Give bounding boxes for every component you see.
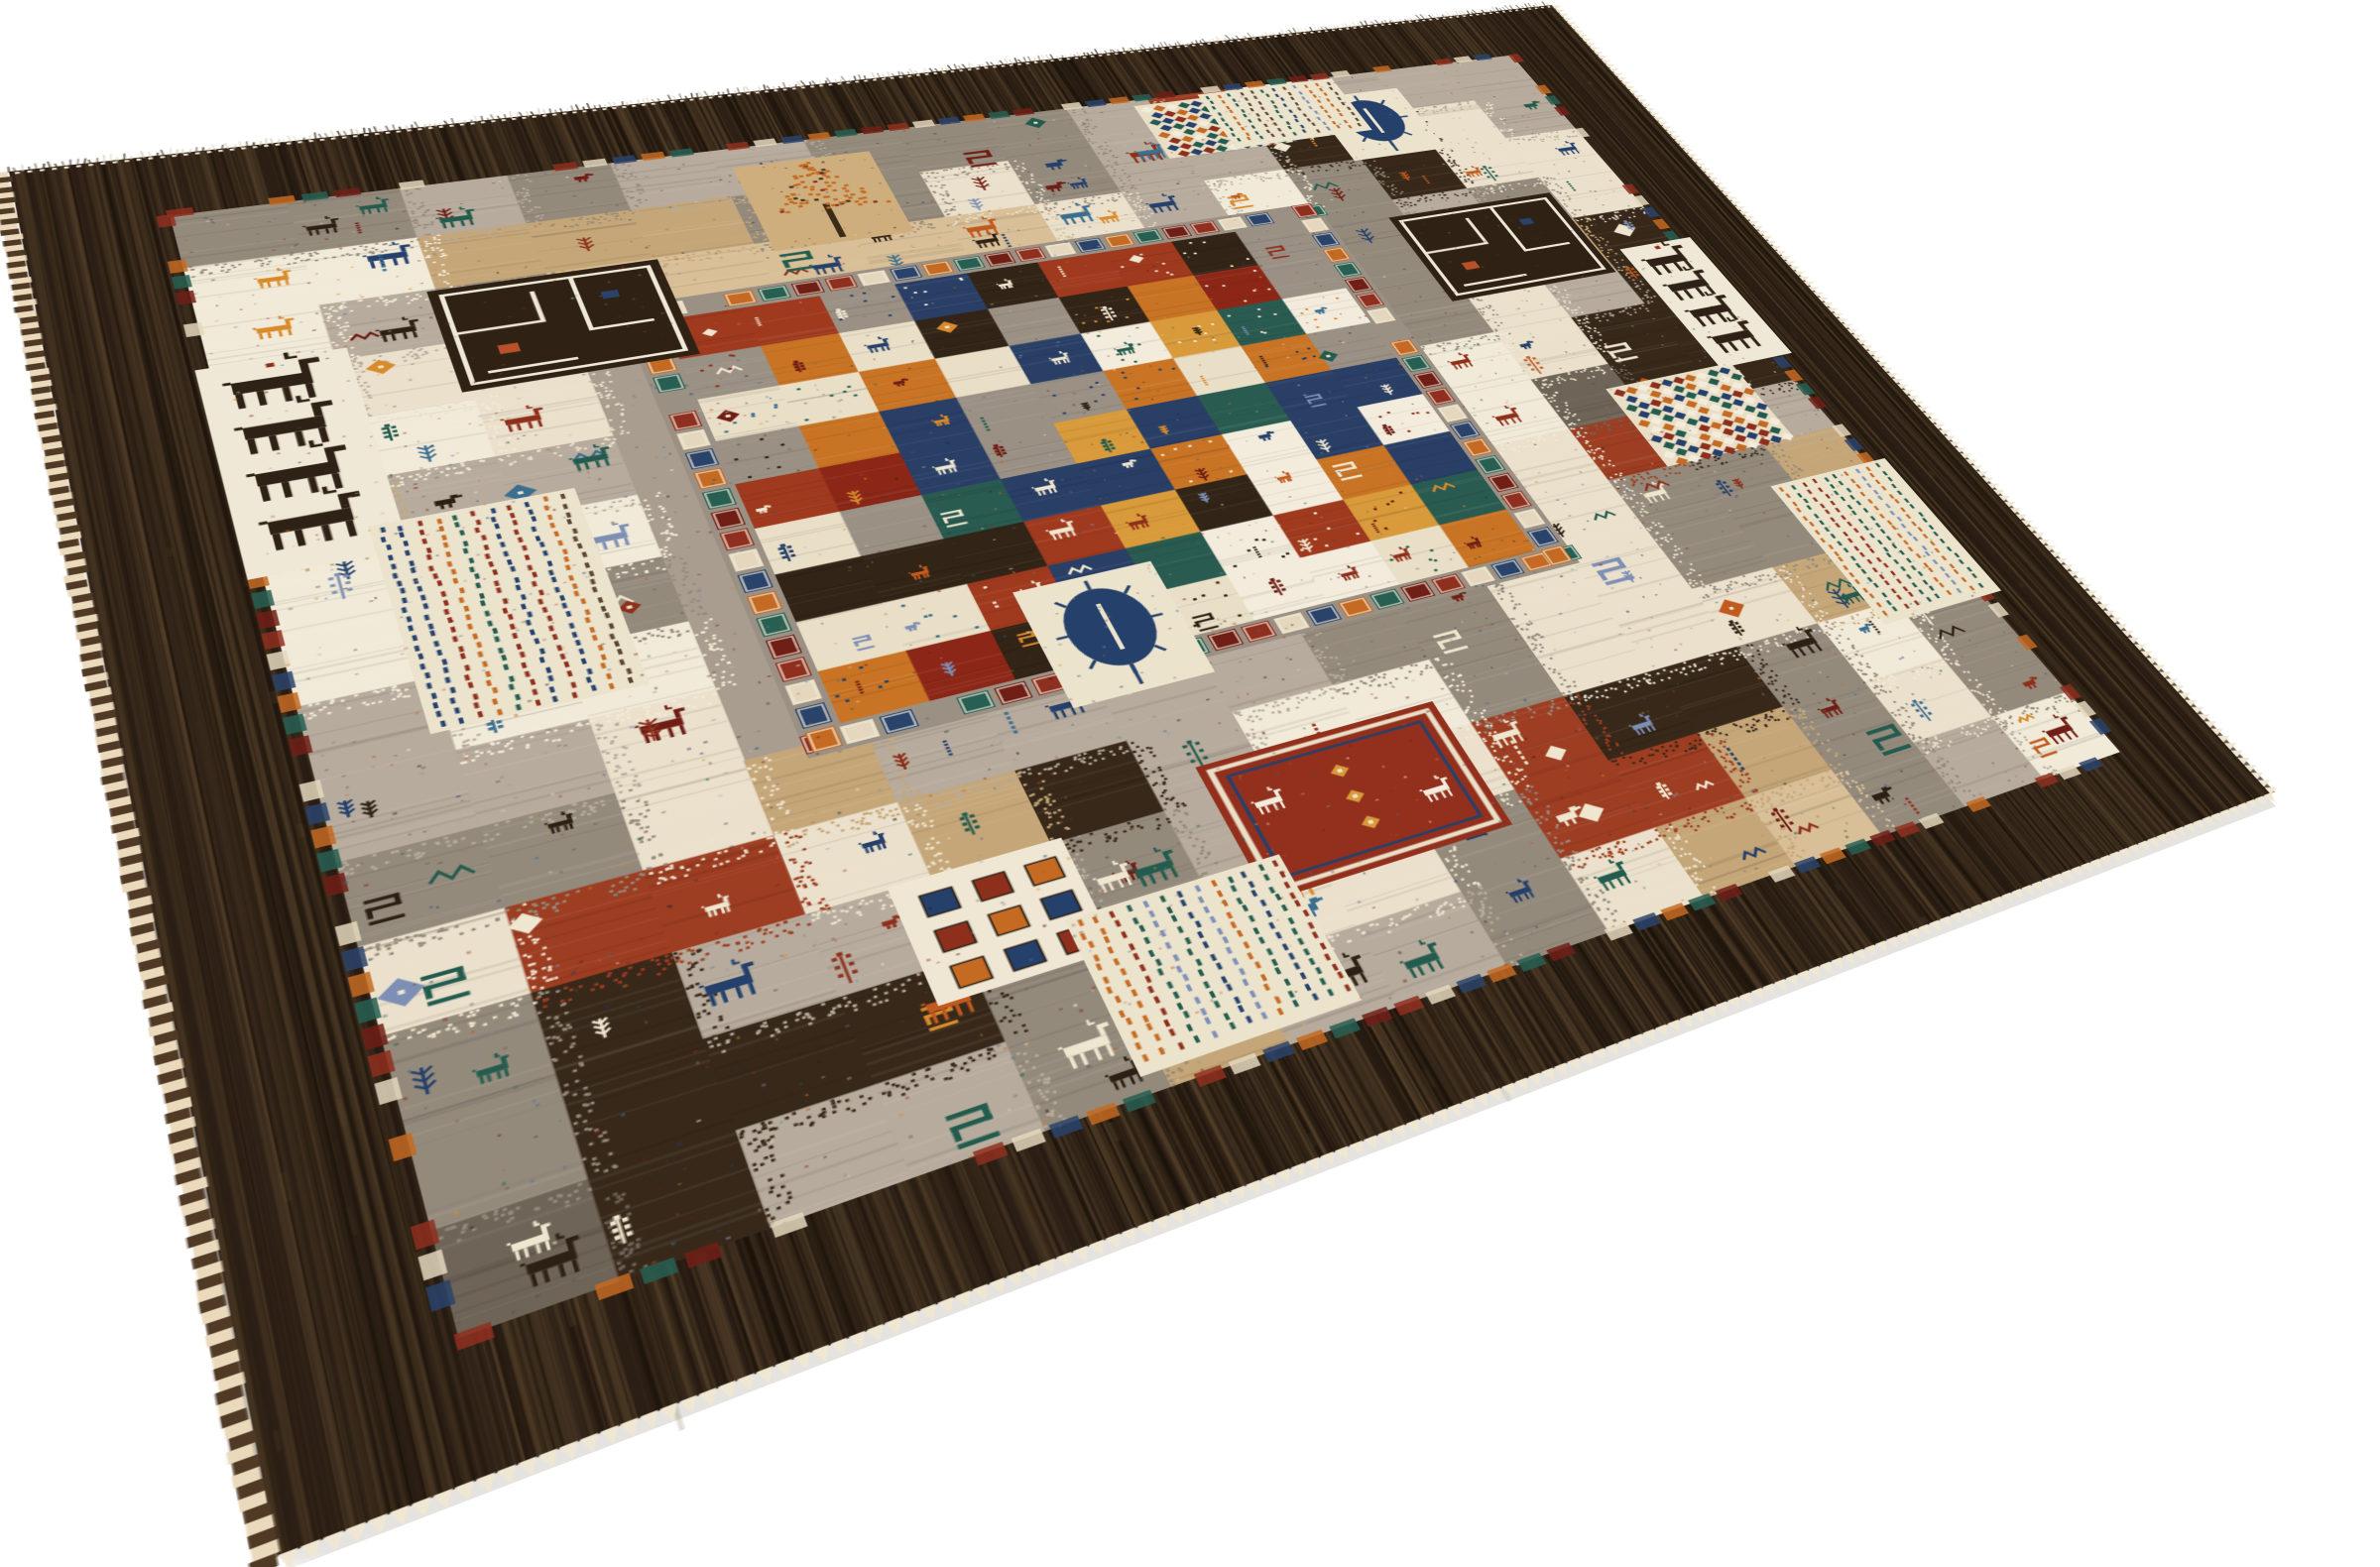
rug-canvas [0, 0, 2300, 1567]
rug [0, 0, 2300, 1567]
page: { "scene": { "type": "product-photo", "s… [0, 0, 2380, 1567]
product-photo [0, 0, 2380, 1567]
